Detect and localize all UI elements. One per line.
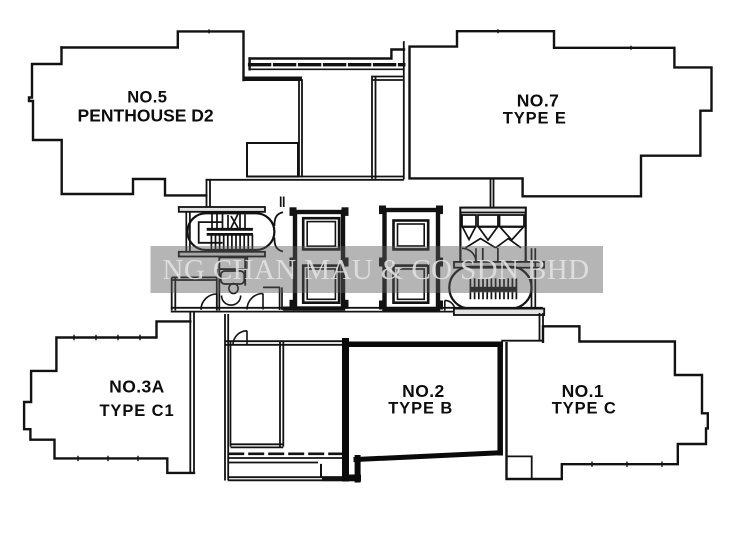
svg-text:NO.2: NO.2 xyxy=(402,381,444,401)
svg-text:TYPE C: TYPE C xyxy=(552,400,617,418)
svg-text:TYPE E: TYPE E xyxy=(503,110,567,128)
svg-text:NG CHAN MAU & CO SDN BHD: NG CHAN MAU & CO SDN BHD xyxy=(163,254,590,286)
svg-text:NO.3A: NO.3A xyxy=(109,377,164,397)
svg-text:NO.7: NO.7 xyxy=(517,91,559,111)
svg-text:TYPE C1: TYPE C1 xyxy=(99,402,174,420)
svg-text:NO.1: NO.1 xyxy=(562,381,604,401)
svg-text:PENTHOUSE D2: PENTHOUSE D2 xyxy=(78,106,214,126)
svg-text:TYPE B: TYPE B xyxy=(388,400,453,418)
svg-text:NO.5: NO.5 xyxy=(127,88,167,106)
